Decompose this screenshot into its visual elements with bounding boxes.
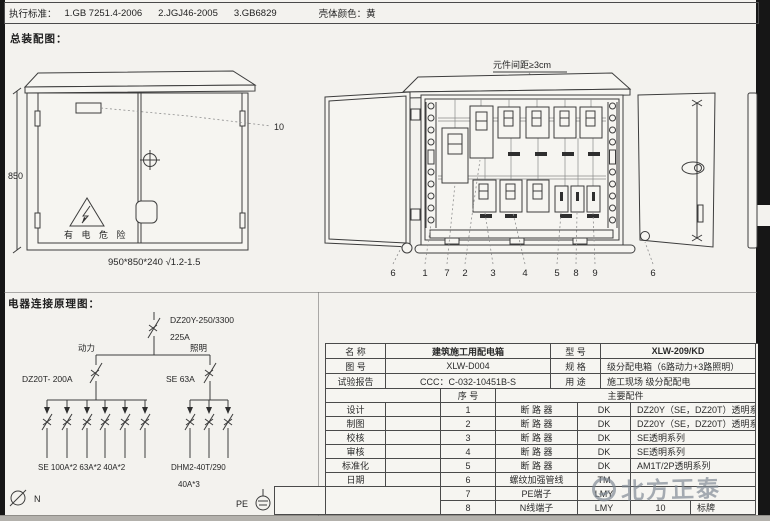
spacing-note: 元件间距≥3cm [493, 59, 551, 70]
report-label: 试验报告 [326, 374, 386, 389]
info-table: 名 称 建筑施工用配电箱 型 号 XLW-209/KD 图 号 XLW-D004… [325, 343, 758, 515]
callout-number: 6 [390, 268, 395, 279]
shell-color-label: 壳体颜色： [319, 6, 367, 20]
schematic-section-title: 电器连接原理图： [8, 296, 100, 311]
signature-cell [386, 445, 441, 459]
size-caption: 950*850*240 √1.2-1.5 [108, 257, 200, 268]
spec-label: 规 格 [551, 359, 601, 374]
part-name: 断 路 器 [496, 431, 578, 445]
part-num: 1 [441, 403, 496, 417]
breaker [498, 107, 520, 138]
right-door [638, 93, 715, 247]
model-value: XLW-209/KD [601, 344, 756, 359]
part-num: 5 [441, 459, 496, 473]
part-desc: SE透明系列 [631, 431, 756, 445]
breaker [473, 180, 496, 212]
callout-number: 2 [462, 268, 467, 279]
callout-number: 1 [422, 268, 427, 279]
standards-bar: 执行标准： 1.GB 7251.4-2006 2.JGJ46-2005 3.GB… [4, 2, 759, 24]
part-name: 断 路 器 [496, 445, 578, 459]
signature-cell [386, 403, 441, 417]
seq-header: 序 号 [441, 389, 496, 403]
blank-cell [326, 487, 441, 515]
part-code: LMY [578, 501, 631, 515]
breaker [554, 107, 576, 138]
part-name: 断 路 器 [496, 417, 578, 431]
breaker [500, 180, 522, 212]
titleblock-design: 设计 [326, 403, 386, 417]
standard-1: 1.GB 7251.4-2006 [65, 8, 143, 19]
right-breaker-label: SE 63A [166, 374, 195, 384]
hinge-icon [35, 213, 40, 228]
use-value: 施工现场 级分配配电 [601, 374, 756, 389]
side-panel [748, 93, 757, 248]
hinge-icon [35, 111, 40, 126]
hazard-text: 有 电 危 险 [64, 229, 129, 240]
left-frame-bar [0, 0, 5, 521]
callout-number: 6 [650, 268, 655, 279]
spec-value: 级分配电箱（6路动力+3路照明） [601, 359, 756, 374]
main-breaker-rating: 225A [170, 332, 190, 342]
shell-color-value: 黄 [366, 6, 376, 20]
small-breaker [555, 186, 568, 212]
hinge-icon [240, 111, 245, 126]
signature-cell [386, 473, 441, 487]
titleblock-draft: 制图 [326, 417, 386, 431]
part-name: 螺纹加强管线 [496, 473, 578, 487]
callout-number: 3 [490, 268, 495, 279]
drawing-no-label: 图 号 [326, 359, 386, 374]
main-breaker [442, 128, 468, 183]
part-num: 4 [441, 445, 496, 459]
small-breaker [587, 186, 600, 212]
neutral-label: N [34, 494, 41, 504]
breaker [470, 106, 493, 158]
standard-2: 2.JGJ46-2005 [158, 8, 218, 19]
use-label: 用 途 [551, 374, 601, 389]
callout-number: 8 [573, 268, 578, 279]
component-layout-drawing: 元件间距≥3cm [315, 52, 765, 282]
main-parts-header: 主要配件 [496, 389, 756, 403]
part-name: N线端子 [496, 501, 578, 515]
left-door [325, 92, 410, 247]
part-code: DK [578, 431, 631, 445]
part-num: 2 [441, 417, 496, 431]
branch-right-label: 照明 [190, 343, 207, 353]
signature-cell [386, 459, 441, 473]
drawing-sheet: 执行标准： 1.GB 7251.4-2006 2.JGJ46-2005 3.GB… [0, 0, 770, 521]
part-desc: SE透明系列 [631, 445, 756, 459]
part-desc: AM1T/2P透明系列 [631, 459, 756, 473]
drawing-no-value: XLW-D004 [386, 359, 551, 374]
part-desc: 标牌 [691, 501, 756, 515]
part-num-2: 10 [631, 501, 691, 515]
blank-cell [326, 389, 441, 403]
left-breaker-label: DZ20T- 200A [22, 374, 73, 384]
info-table-header: 名 称 建筑施工用配电箱 型 号 XLW-209/KD 图 号 XLW-D004… [326, 344, 758, 389]
signature-cell [386, 417, 441, 431]
part-desc [631, 473, 756, 487]
part-desc: DZ20Y（SE，DZ20T）透明系列 [631, 417, 756, 431]
cabinet-front-drawing: 850 10 有 电 危 险 950*85 [8, 58, 308, 270]
report-value: CCC：C-032-10451B-S [386, 374, 551, 389]
callout-number: 5 [554, 268, 559, 279]
hinge-icon [240, 213, 245, 228]
name-label: 名 称 [326, 344, 386, 359]
part-num: 6 [441, 473, 496, 487]
title-block-empty-cell [274, 486, 326, 515]
part-code: LMY [578, 487, 631, 501]
part-num: 8 [441, 501, 496, 515]
part-num: 7 [441, 487, 496, 501]
callout-number: 4 [522, 268, 527, 279]
standard-3: 3.GB6829 [234, 8, 277, 19]
titleblock-audit: 审核 [326, 445, 386, 459]
model-label: 型 号 [551, 344, 601, 359]
part-desc [631, 487, 756, 501]
height-dimension: 850 [8, 171, 23, 181]
standards-label: 执行标准： [9, 6, 57, 20]
signature-cell [386, 431, 441, 445]
breaker [580, 107, 602, 138]
parts-table: 序 号 主要配件 设计 1 断 路 器 DK DZ20Y（SE，DZ20T）透明… [326, 389, 758, 515]
assembly-section-title: 总装配图： [10, 31, 68, 46]
titleblock-check: 校核 [326, 431, 386, 445]
outgoing-breakers-power [42, 400, 150, 458]
callout-10: 10 [274, 122, 284, 132]
part-num: 3 [441, 431, 496, 445]
right-group-rating: 40A*3 [178, 480, 200, 489]
main-breaker-model: DZ20Y-250/3300 [170, 315, 234, 325]
titleblock-standardize: 标准化 [326, 459, 386, 473]
pe-label: PE [236, 499, 248, 509]
outgoing-breakers-lighting [185, 400, 233, 458]
part-name: PE端子 [496, 487, 578, 501]
part-code: TM [578, 473, 631, 487]
door-handle [136, 201, 157, 223]
section-divider-horizontal [4, 292, 757, 293]
earth-ground-icon [256, 489, 270, 510]
right-group-model: DHM2-40T/290 [171, 463, 226, 472]
part-name: 断 路 器 [496, 459, 578, 473]
part-code: DK [578, 417, 631, 431]
neutral-symbol-icon [10, 490, 26, 506]
part-desc: DZ20Y（SE，DZ20T）透明系列 [631, 403, 756, 417]
part-code: DK [578, 445, 631, 459]
left-group-label: SE 100A*2 63A*2 40A*2 [38, 463, 126, 472]
name-value: 建筑施工用配电箱 [386, 344, 551, 359]
part-code: DK [578, 459, 631, 473]
part-name: 断 路 器 [496, 403, 578, 417]
titleblock-date: 日期 [326, 473, 386, 487]
part-code: DK [578, 403, 631, 417]
branch-left-label: 动力 [78, 343, 95, 353]
callout-number: 7 [444, 268, 449, 279]
breaker [526, 107, 549, 138]
breaker [527, 180, 549, 212]
callout-number: 9 [592, 268, 597, 279]
small-breaker [571, 186, 584, 212]
